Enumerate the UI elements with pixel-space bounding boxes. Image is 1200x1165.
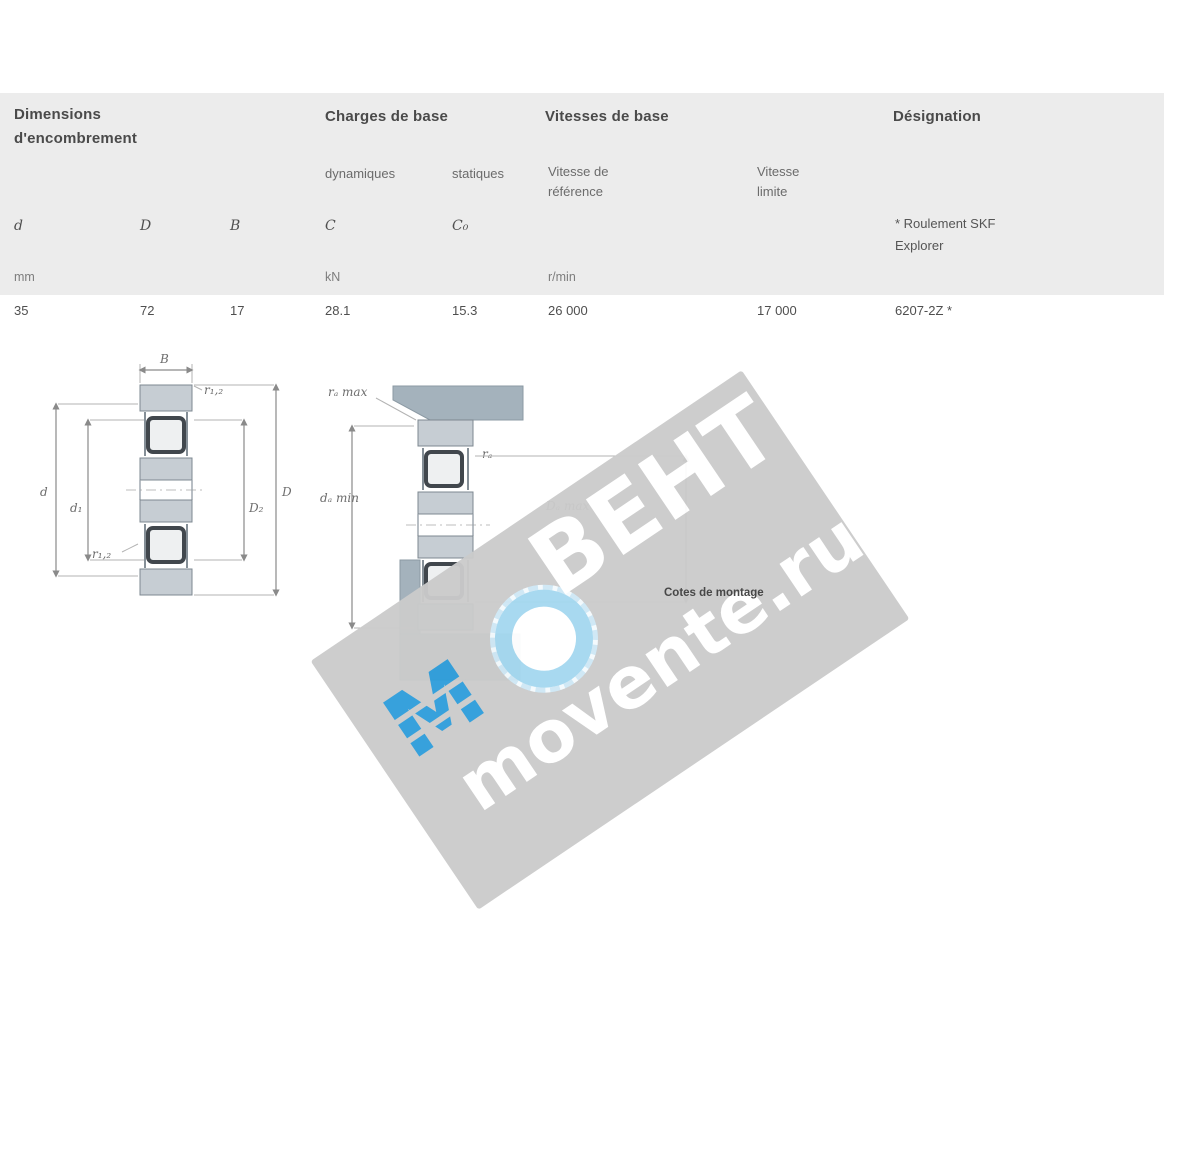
bearing-boundary-drawing: B r₁,₂ d d₁ D₂ D r₁,₂ (18, 346, 318, 656)
cell-width-B: 17 (230, 303, 244, 318)
dim-label-B: B (159, 352, 169, 366)
dim-label-d1: d₁ (70, 501, 83, 515)
cell-load-C0: 15.3 (452, 303, 477, 318)
dim-label-d: d (40, 485, 48, 499)
cell-load-C: 28.1 (325, 303, 350, 318)
dim-label-ra-small: rₐ (482, 447, 492, 461)
subheader-static-load: statiques (452, 166, 504, 181)
catalog-page: Dimensions d'encombrement Charges de bas… (0, 0, 1200, 1165)
explorer-footnote-line2: Explorer (895, 238, 943, 253)
cell-bore-d: 35 (14, 303, 28, 318)
subheader-ref-speed-line1: Vitesse de (548, 164, 608, 179)
cell-ref-speed: 26 000 (548, 303, 588, 318)
col-group-dimensions-line1: Dimensions (14, 106, 101, 123)
cell-lim-speed: 17 000 (757, 303, 797, 318)
symbol-d: d (14, 218, 23, 234)
cell-outer-D: 72 (140, 303, 154, 318)
housing-section (393, 386, 523, 420)
symbol-B: B (230, 218, 240, 234)
dim-label-r12-bottom: r₁,₂ (92, 547, 111, 561)
dim-label-da-min: dₐ min (320, 491, 359, 505)
cell-designation: 6207-2Z * (895, 303, 952, 318)
symbol-D: D (140, 218, 151, 234)
col-group-loads: Charges de base (325, 108, 448, 125)
col-group-speeds: Vitesses de base (545, 108, 669, 125)
subheader-lim-speed-line1: Vitesse (757, 164, 799, 179)
unit-rmin: r/min (548, 270, 576, 284)
col-group-designation: Désignation (893, 108, 981, 125)
symbol-C: C (325, 218, 336, 234)
subheader-lim-speed-line2: limite (757, 184, 787, 199)
symbol-C0: C₀ (452, 218, 468, 234)
subheader-dynamic-load: dynamiques (325, 166, 395, 181)
explorer-footnote-line1: * Roulement SKF (895, 216, 995, 231)
dim-label-D: D (281, 485, 292, 499)
col-group-dimensions-line2: d'encombrement (14, 130, 137, 147)
subheader-ref-speed-line2: référence (548, 184, 603, 199)
dim-label-ra-max: rₐ max (328, 385, 368, 399)
figure-caption: Cotes de montage (664, 587, 764, 599)
dim-label-D2: D₂ (248, 501, 264, 515)
unit-kn: kN (325, 270, 340, 284)
unit-mm: mm (14, 270, 35, 284)
